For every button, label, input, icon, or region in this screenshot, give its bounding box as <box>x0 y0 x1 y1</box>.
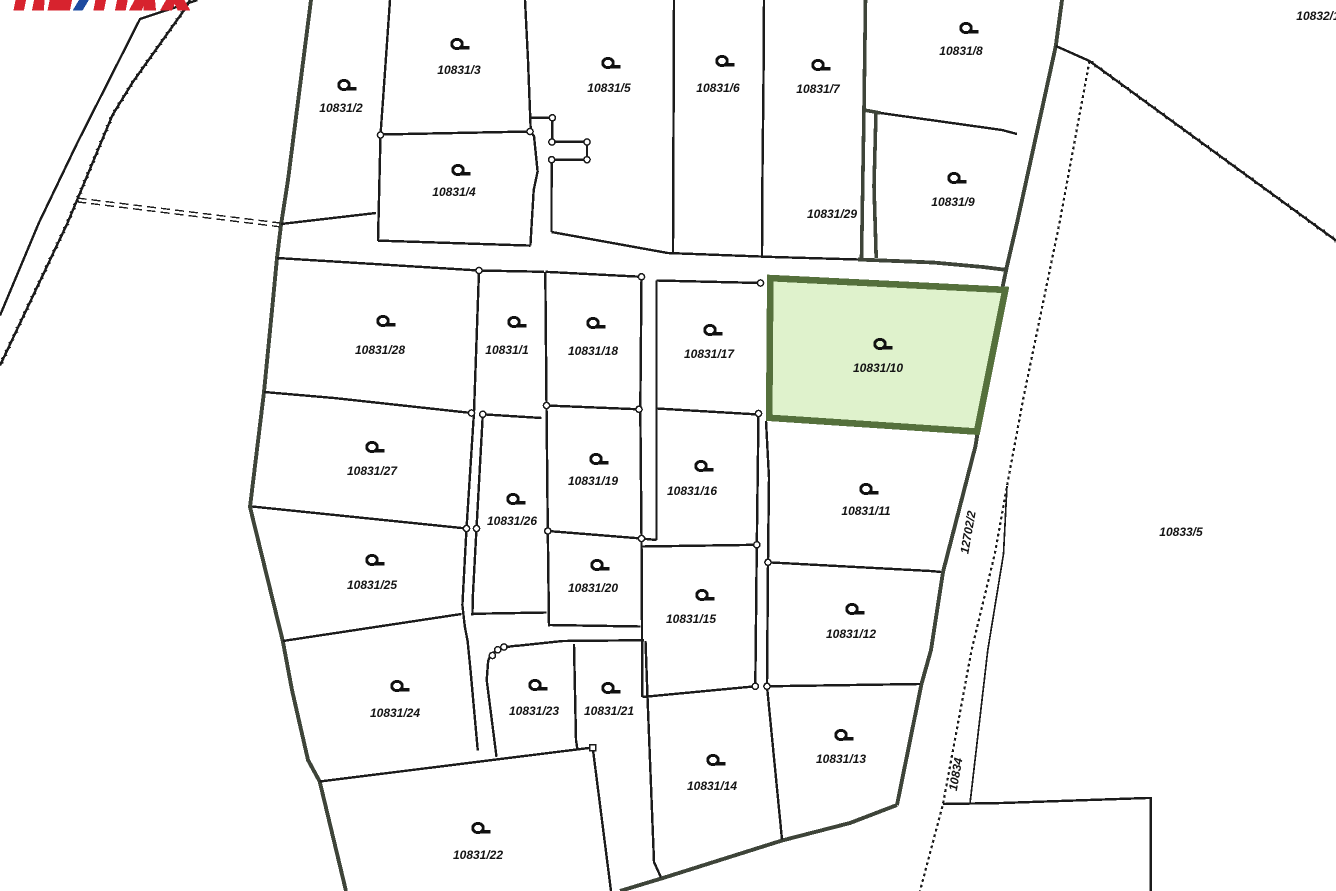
svg-text:10831/20: 10831/20 <box>568 581 618 595</box>
svg-text:10831/19: 10831/19 <box>568 474 618 488</box>
svg-text:10831/29: 10831/29 <box>807 207 857 221</box>
svg-text:10831/12: 10831/12 <box>826 627 876 641</box>
svg-text:10831/2: 10831/2 <box>319 101 363 115</box>
svg-text:10831/18: 10831/18 <box>568 344 618 358</box>
svg-text:10831/21: 10831/21 <box>584 704 634 718</box>
svg-text:10831/27: 10831/27 <box>347 464 398 478</box>
svg-text:10833/5: 10833/5 <box>1159 525 1203 539</box>
svg-text:10831/15: 10831/15 <box>666 612 716 626</box>
svg-text:10831/24: 10831/24 <box>370 706 420 720</box>
svg-text:10831/7: 10831/7 <box>796 82 841 96</box>
svg-text:10831/26: 10831/26 <box>487 514 537 528</box>
svg-text:10831/16: 10831/16 <box>667 484 717 498</box>
svg-text:10831/11: 10831/11 <box>841 504 890 518</box>
svg-text:10831/4: 10831/4 <box>432 185 476 199</box>
svg-text:10832/1: 10832/1 <box>1296 9 1336 23</box>
svg-text:10831/13: 10831/13 <box>816 752 866 766</box>
svg-text:10831/25: 10831/25 <box>347 578 397 592</box>
svg-text:10831/1: 10831/1 <box>485 343 529 357</box>
svg-text:10831/8: 10831/8 <box>939 44 983 58</box>
svg-text:10831/28: 10831/28 <box>355 343 405 357</box>
svg-text:10831/22: 10831/22 <box>453 848 503 862</box>
svg-text:10831/6: 10831/6 <box>696 81 740 95</box>
svg-text:10831/9: 10831/9 <box>931 195 975 209</box>
svg-text:10831/17: 10831/17 <box>684 347 735 361</box>
svg-text:10831/10: 10831/10 <box>853 361 903 375</box>
svg-text:10831/23: 10831/23 <box>509 704 559 718</box>
svg-text:10831/14: 10831/14 <box>687 779 737 793</box>
svg-text:10831/3: 10831/3 <box>437 63 481 77</box>
svg-text:10831/5: 10831/5 <box>587 81 631 95</box>
